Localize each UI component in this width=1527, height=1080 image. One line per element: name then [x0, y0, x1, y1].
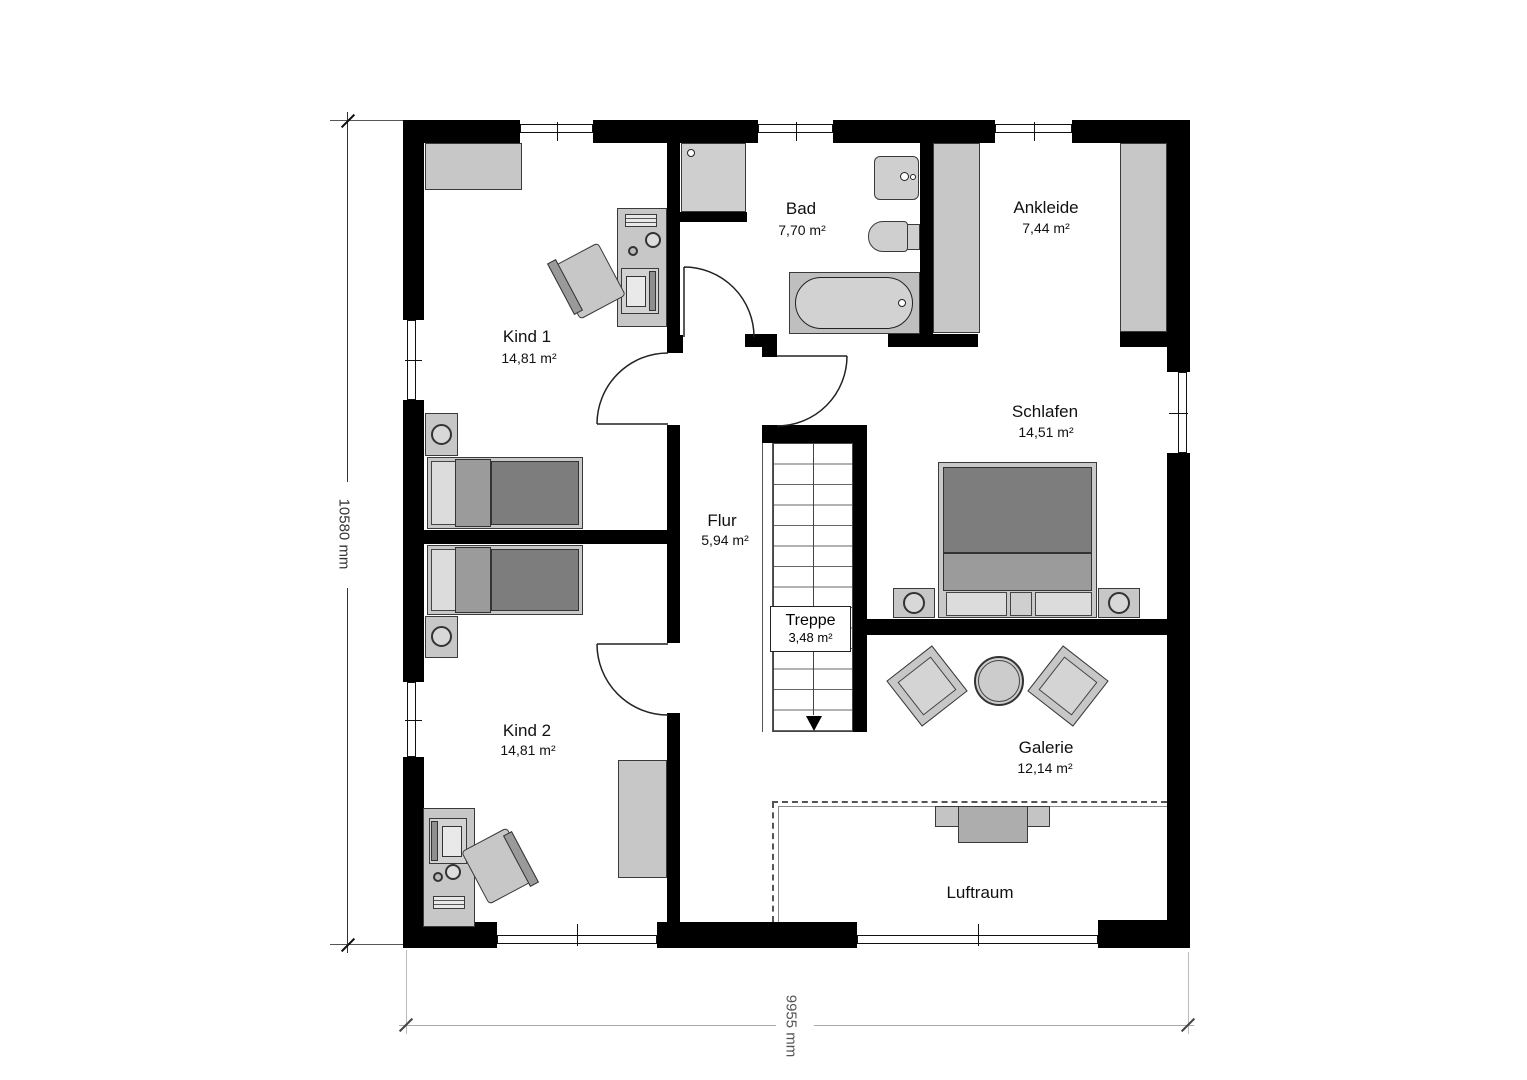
window-kind2-bottom	[497, 922, 657, 948]
dim-line-bottom	[814, 1025, 1194, 1026]
wall-corridor	[667, 713, 680, 922]
room-name-kind2: Kind 2	[503, 721, 551, 741]
wall-flur-schlafen-stub	[762, 345, 777, 357]
room-name-ankleide: Ankleide	[1013, 198, 1078, 218]
wall-top	[403, 120, 520, 143]
pillow-icon	[431, 549, 458, 611]
bathtub-icon	[795, 277, 913, 329]
wall-left	[403, 400, 424, 682]
window-kind1-left	[403, 320, 424, 400]
toilet-bowl-icon	[868, 221, 908, 252]
dim-line-left	[347, 112, 348, 482]
blanket-icon	[491, 461, 579, 525]
desk-lamp-icon	[645, 232, 661, 248]
window-ankleide-top	[995, 120, 1072, 143]
dim-tick-icon	[341, 114, 355, 128]
pillow-icon	[1010, 592, 1032, 616]
wall-schlafen-galerie	[853, 619, 1167, 635]
dim-label-left: 10580 mm	[336, 499, 353, 570]
wardrobe-icon	[618, 760, 667, 878]
faucet-icon	[910, 174, 916, 180]
window-schlafen-right	[1167, 372, 1190, 453]
wall-stair-right	[853, 443, 867, 732]
wall-left	[403, 143, 424, 320]
void-dashed-line	[772, 802, 774, 922]
wall-bottom	[657, 922, 857, 948]
monitor-screen-icon	[442, 826, 462, 857]
pillow-icon	[1035, 592, 1092, 616]
blanket-icon	[943, 467, 1092, 553]
wardrobe-icon	[425, 143, 522, 190]
wall-bad-bottom	[888, 334, 978, 347]
room-name-bad: Bad	[786, 199, 816, 219]
room-area-kind2: 14,81 m²	[500, 742, 555, 758]
room-area-galerie: 12,14 m²	[1017, 760, 1072, 776]
desk-shelf-icon	[625, 214, 657, 227]
stair-side-gap	[762, 443, 773, 732]
wall-bad-ankleide	[920, 143, 933, 347]
door-schlafen	[777, 356, 847, 426]
door-kind2	[597, 644, 668, 715]
room-area-bad: 7,70 m²	[778, 222, 825, 238]
lamp-icon	[1108, 592, 1130, 614]
window-bad-top	[758, 120, 833, 143]
door-bad	[684, 267, 754, 337]
wardrobe-icon	[933, 143, 980, 333]
desk-lamp-base-icon	[628, 246, 638, 256]
wall-top	[833, 120, 995, 143]
window-luftraum-bottom	[857, 922, 1098, 948]
void-dashed-line	[772, 801, 1167, 803]
room-label-treppe: Treppe 3,48 m²	[770, 606, 851, 652]
shower-drain-icon	[687, 149, 695, 157]
wall-corridor	[667, 143, 680, 353]
window-kind2-left	[403, 682, 424, 757]
wall-shower-stub	[667, 212, 747, 222]
room-name-schlafen: Schlafen	[1012, 402, 1078, 422]
door-kind1	[597, 353, 668, 424]
wall-stair-top	[762, 425, 867, 443]
wall-ankleide-bottom	[1120, 332, 1190, 347]
room-area-schlafen: 14,51 m²	[1018, 424, 1073, 440]
desk-shelf-icon	[433, 896, 465, 909]
wall-top	[1072, 120, 1190, 143]
faucet-icon	[900, 172, 909, 181]
floor-plan: Treppe 3,48 m² Kind 1 14,81 m² Bad 7,70 …	[0, 0, 1527, 1080]
monitor-stand-icon	[431, 821, 438, 861]
wall-right	[1167, 453, 1190, 920]
dim-extension-line	[330, 120, 403, 121]
blanket-fold-icon	[455, 547, 491, 613]
side-table-top-icon	[978, 660, 1020, 702]
wardrobe-icon	[1120, 143, 1167, 332]
sideboard-icon	[958, 806, 1028, 843]
lamp-icon	[431, 424, 452, 445]
room-area: 3,48 m²	[788, 631, 832, 646]
window-kind1-top	[520, 120, 593, 143]
dim-extension-line	[330, 944, 403, 945]
wall-kind1-kind2-divider	[424, 530, 680, 544]
dim-line-bottom	[399, 1025, 776, 1026]
wall-bottom-corner	[1098, 920, 1190, 948]
wall-top	[593, 120, 758, 143]
stair-direction-arrow-icon	[806, 716, 822, 731]
lamp-icon	[903, 592, 925, 614]
room-name-kind1: Kind 1	[503, 327, 551, 347]
staircase-icon	[773, 443, 853, 732]
lamp-icon	[431, 626, 452, 647]
pillow-icon	[946, 592, 1007, 616]
wall-left	[403, 757, 424, 922]
blanket-icon	[491, 549, 579, 611]
room-name-luftraum: Luftraum	[946, 883, 1013, 903]
blanket-fold-icon	[455, 459, 491, 527]
room-area-flur: 5,94 m²	[701, 532, 748, 548]
monitor-screen-icon	[626, 276, 646, 307]
room-name-galerie: Galerie	[1019, 738, 1074, 758]
monitor-stand-icon	[649, 271, 656, 311]
pillow-icon	[431, 461, 458, 525]
bathtub-drain-icon	[898, 299, 906, 307]
blanket-fold-icon	[943, 553, 1092, 591]
desk-lamp-base-icon	[433, 872, 443, 882]
room-name-flur: Flur	[707, 511, 736, 531]
dim-label-bottom: 9955 mm	[783, 995, 800, 1058]
dim-line-left	[347, 588, 348, 953]
wall-doorframe	[667, 335, 683, 353]
dim-tick-icon	[341, 938, 355, 952]
room-area-kind1: 14,81 m²	[501, 350, 556, 366]
void-floor-edge	[778, 807, 779, 922]
desk-lamp-icon	[445, 864, 461, 880]
room-area-ankleide: 7,44 m²	[1022, 220, 1069, 236]
room-name: Treppe	[785, 612, 835, 630]
